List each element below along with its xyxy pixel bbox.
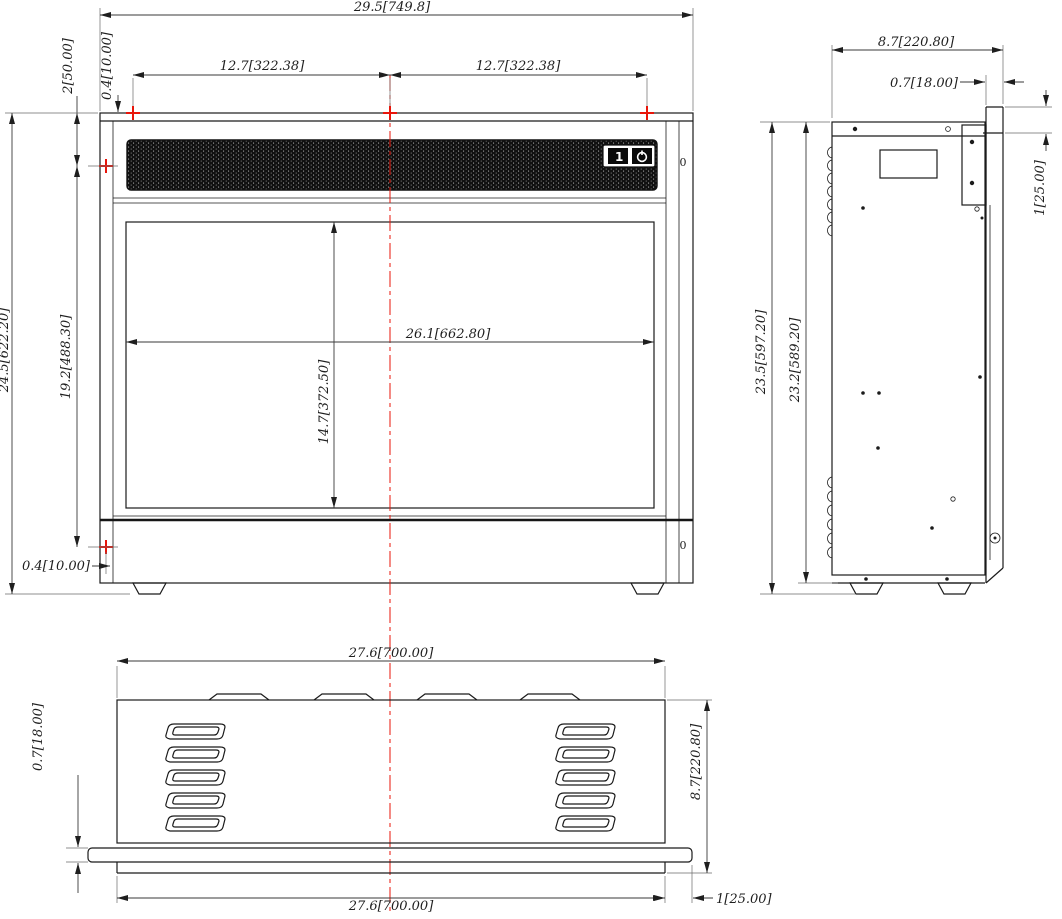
hole-label-top: 0: [680, 156, 687, 169]
dim-side-body-height: 23.2[589.20]: [788, 317, 803, 404]
dim-mount-span-right: 12.7[322.38]: [476, 59, 562, 74]
dim-bottom-width-top: 27.6[700.00]: [348, 646, 435, 661]
fireplace-dimension-drawing: 1 0 0 29.5[749.8]: [0, 0, 1062, 914]
side-screw-holes: [861, 206, 983, 581]
dim-flange-overhang: 1[25.00]: [716, 892, 773, 907]
front-view: 1 0 0: [100, 113, 693, 594]
dim-mount-top-offset: 0.4[10.00]: [100, 31, 115, 100]
side-right-foot: [938, 583, 971, 594]
top-tab: [314, 694, 374, 700]
side-left-foot: [850, 583, 883, 594]
vent-louvers-right: [556, 724, 615, 831]
switch-on-label: 1: [615, 150, 623, 164]
dim-front-overall-width: 29.5[749.8]: [353, 0, 431, 15]
dim-flange-lip: 1[25.00]: [1033, 159, 1048, 216]
power-switch: 1: [603, 145, 655, 167]
dim-side-mount-offset: 0.4[10.00]: [22, 559, 91, 574]
dim-strip-thickness: 0.7[18.00]: [31, 702, 46, 771]
dim-side-overall-height: 23.5[597.20]: [754, 309, 769, 396]
dim-opening-height: 14.7[372.50]: [317, 359, 332, 445]
grille-mesh: [127, 140, 657, 190]
dim-flange-thickness: 0.7[18.00]: [890, 76, 959, 91]
rating-label-plate: [880, 150, 937, 178]
front-flange: [983, 107, 1003, 583]
dim-bottom-width-bottom: 27.6[700.00]: [348, 899, 435, 914]
dim-opening-width: 26.1[662.80]: [405, 327, 492, 342]
side-louver-bumps: [828, 147, 833, 558]
technical-drawing-page: 1 0 0 29.5[749.8]: [0, 0, 1062, 914]
dim-side-depth: 8.7[220.80]: [878, 35, 955, 50]
vent-louvers-left: [166, 724, 225, 831]
front-right-foot: [631, 583, 664, 594]
dim-front-overall-height: 24.5[622.20]: [0, 307, 12, 394]
front-left-foot: [133, 583, 166, 594]
front-view-dimensions: 29.5[749.8] 12.7[322.38] 12.7[322.38] 0.…: [0, 0, 693, 594]
hole-label-bottom: 0: [680, 539, 687, 552]
dim-top-to-side-mount: 2[50.00]: [61, 37, 76, 95]
dim-side-mount-span: 19.2[488.30]: [59, 314, 74, 400]
dim-mount-span-left: 12.7[322.38]: [220, 59, 306, 74]
side-view-dimensions: 8.7[220.80] 0.7[18.00] 1[25.00] 23.5[597…: [754, 35, 1052, 594]
top-tab: [209, 694, 269, 700]
top-tab: [417, 694, 477, 700]
side-view: [828, 107, 1004, 594]
top-tab: [520, 694, 580, 700]
bottom-view-dimensions: 27.6[700.00] 0.7[18.00] 8.7[220.80] 27.6…: [31, 646, 773, 914]
dim-bottom-depth: 8.7[220.80]: [689, 723, 704, 800]
